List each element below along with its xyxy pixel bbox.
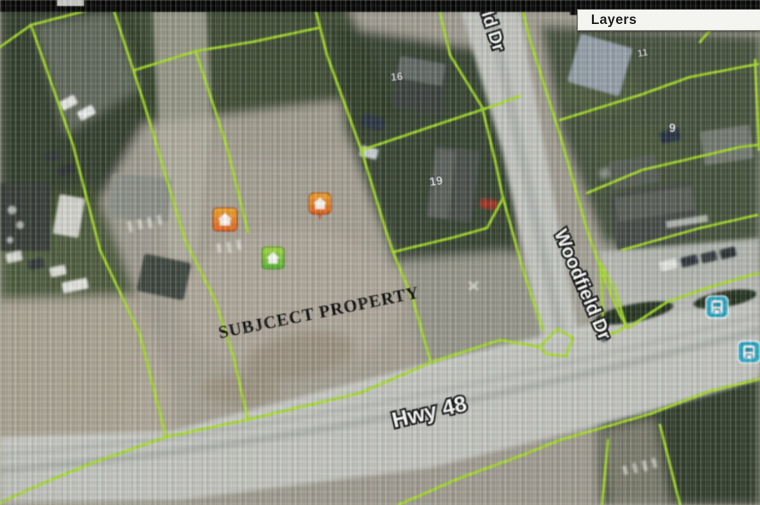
building xyxy=(700,125,754,166)
building-detail xyxy=(8,206,16,214)
house-number-19: 19 xyxy=(428,173,443,189)
house-number-9: 9 xyxy=(669,121,676,135)
orange-home-marker-1[interactable] xyxy=(213,208,237,231)
building-detail xyxy=(7,237,13,243)
house-number-16: 16 xyxy=(390,71,403,84)
map-viewport[interactable]: SUBJCECT PROPERTY Hwy 48 Woodfield Dr el… xyxy=(0,0,760,505)
green-home-marker[interactable] xyxy=(262,247,284,269)
transit-stop-marker-1[interactable] xyxy=(706,296,728,318)
layers-panel-title: Layers xyxy=(591,12,637,27)
building xyxy=(108,173,172,222)
layers-panel[interactable]: Layers xyxy=(577,9,760,31)
bezel-notch xyxy=(57,0,84,6)
transit-stop-marker-2[interactable] xyxy=(738,341,760,363)
aerial-map-canvas[interactable]: SUBJCECT PROPERTY Hwy 48 Woodfield Dr el… xyxy=(0,0,760,505)
building-detail xyxy=(17,222,24,229)
